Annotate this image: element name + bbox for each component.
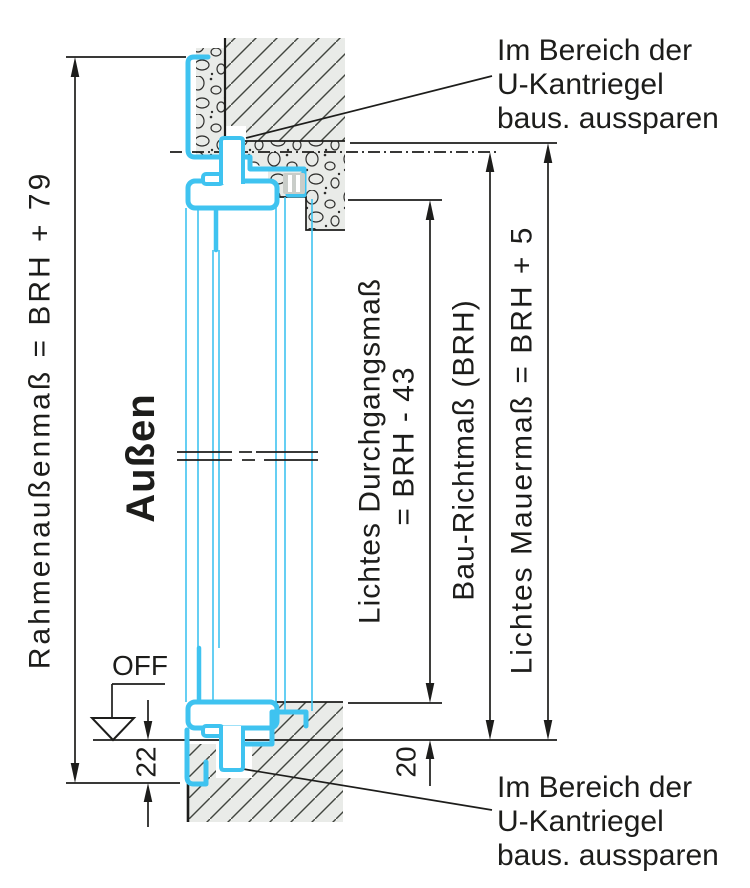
label-mauermass: Lichtes Mauermaß = BRH + 5	[506, 226, 539, 675]
frame-head-box	[188, 181, 277, 208]
annotation-bottom-line2: U-Kantriegel	[497, 805, 664, 838]
label-dim-20: 20	[391, 746, 422, 777]
annotation-bottom-line1: Im Bereich der	[497, 771, 692, 804]
label-dim-22: 22	[131, 746, 162, 777]
label-off: OFF	[112, 650, 168, 681]
dimension-durchgangsmass	[426, 200, 435, 703]
lock-keeper-block	[283, 173, 305, 194]
door-frame-vertical-section: Rahmenaußenmaß = BRH + 79 Außen Lichtes …	[0, 0, 750, 888]
label-aussen: Außen	[119, 393, 163, 522]
floor-level-marker	[92, 684, 165, 740]
label-rahmenaussenmass: Rahmenaußenmaß = BRH + 79	[24, 171, 57, 670]
dimension-20	[426, 740, 435, 786]
label-durchgangsmass-line1: Lichtes Durchgangsmaß	[354, 278, 387, 624]
technical-drawing-page: Rahmenaußenmaß = BRH + 79 Außen Lichtes …	[0, 0, 750, 888]
annotation-bottom-line3: baus. aussparen	[497, 839, 719, 872]
annotation-top-line1: Im Bereich der	[497, 34, 692, 67]
label-baurichtmass: Bau-Richtmaß (BRH)	[448, 299, 481, 600]
annotation-top: Im Bereich der U-Kantriegel baus. ausspa…	[497, 34, 719, 135]
dimension-mauermass	[544, 143, 553, 740]
labels: Rahmenaußenmaß = BRH + 79 Außen Lichtes …	[24, 34, 719, 872]
level-triangle-icon	[92, 718, 134, 740]
label-durchgangsmass-line2: = BRH - 43	[388, 366, 421, 525]
u-kantriegel-bolt-bottom	[221, 726, 243, 770]
dimension-baurichtmass	[486, 152, 495, 740]
annotation-top-line2: U-Kantriegel	[497, 68, 664, 101]
annotation-bottom: Im Bereich der U-Kantriegel baus. ausspa…	[497, 771, 719, 872]
frame-sill-box	[188, 702, 277, 728]
dimension-rahmenaussenmass	[71, 57, 80, 783]
door-leaf-edges	[186, 197, 312, 711]
annotation-top-line3: baus. aussparen	[497, 102, 719, 135]
wall-hatch-area	[225, 38, 345, 141]
u-kantriegel-bolt-top	[221, 138, 243, 184]
